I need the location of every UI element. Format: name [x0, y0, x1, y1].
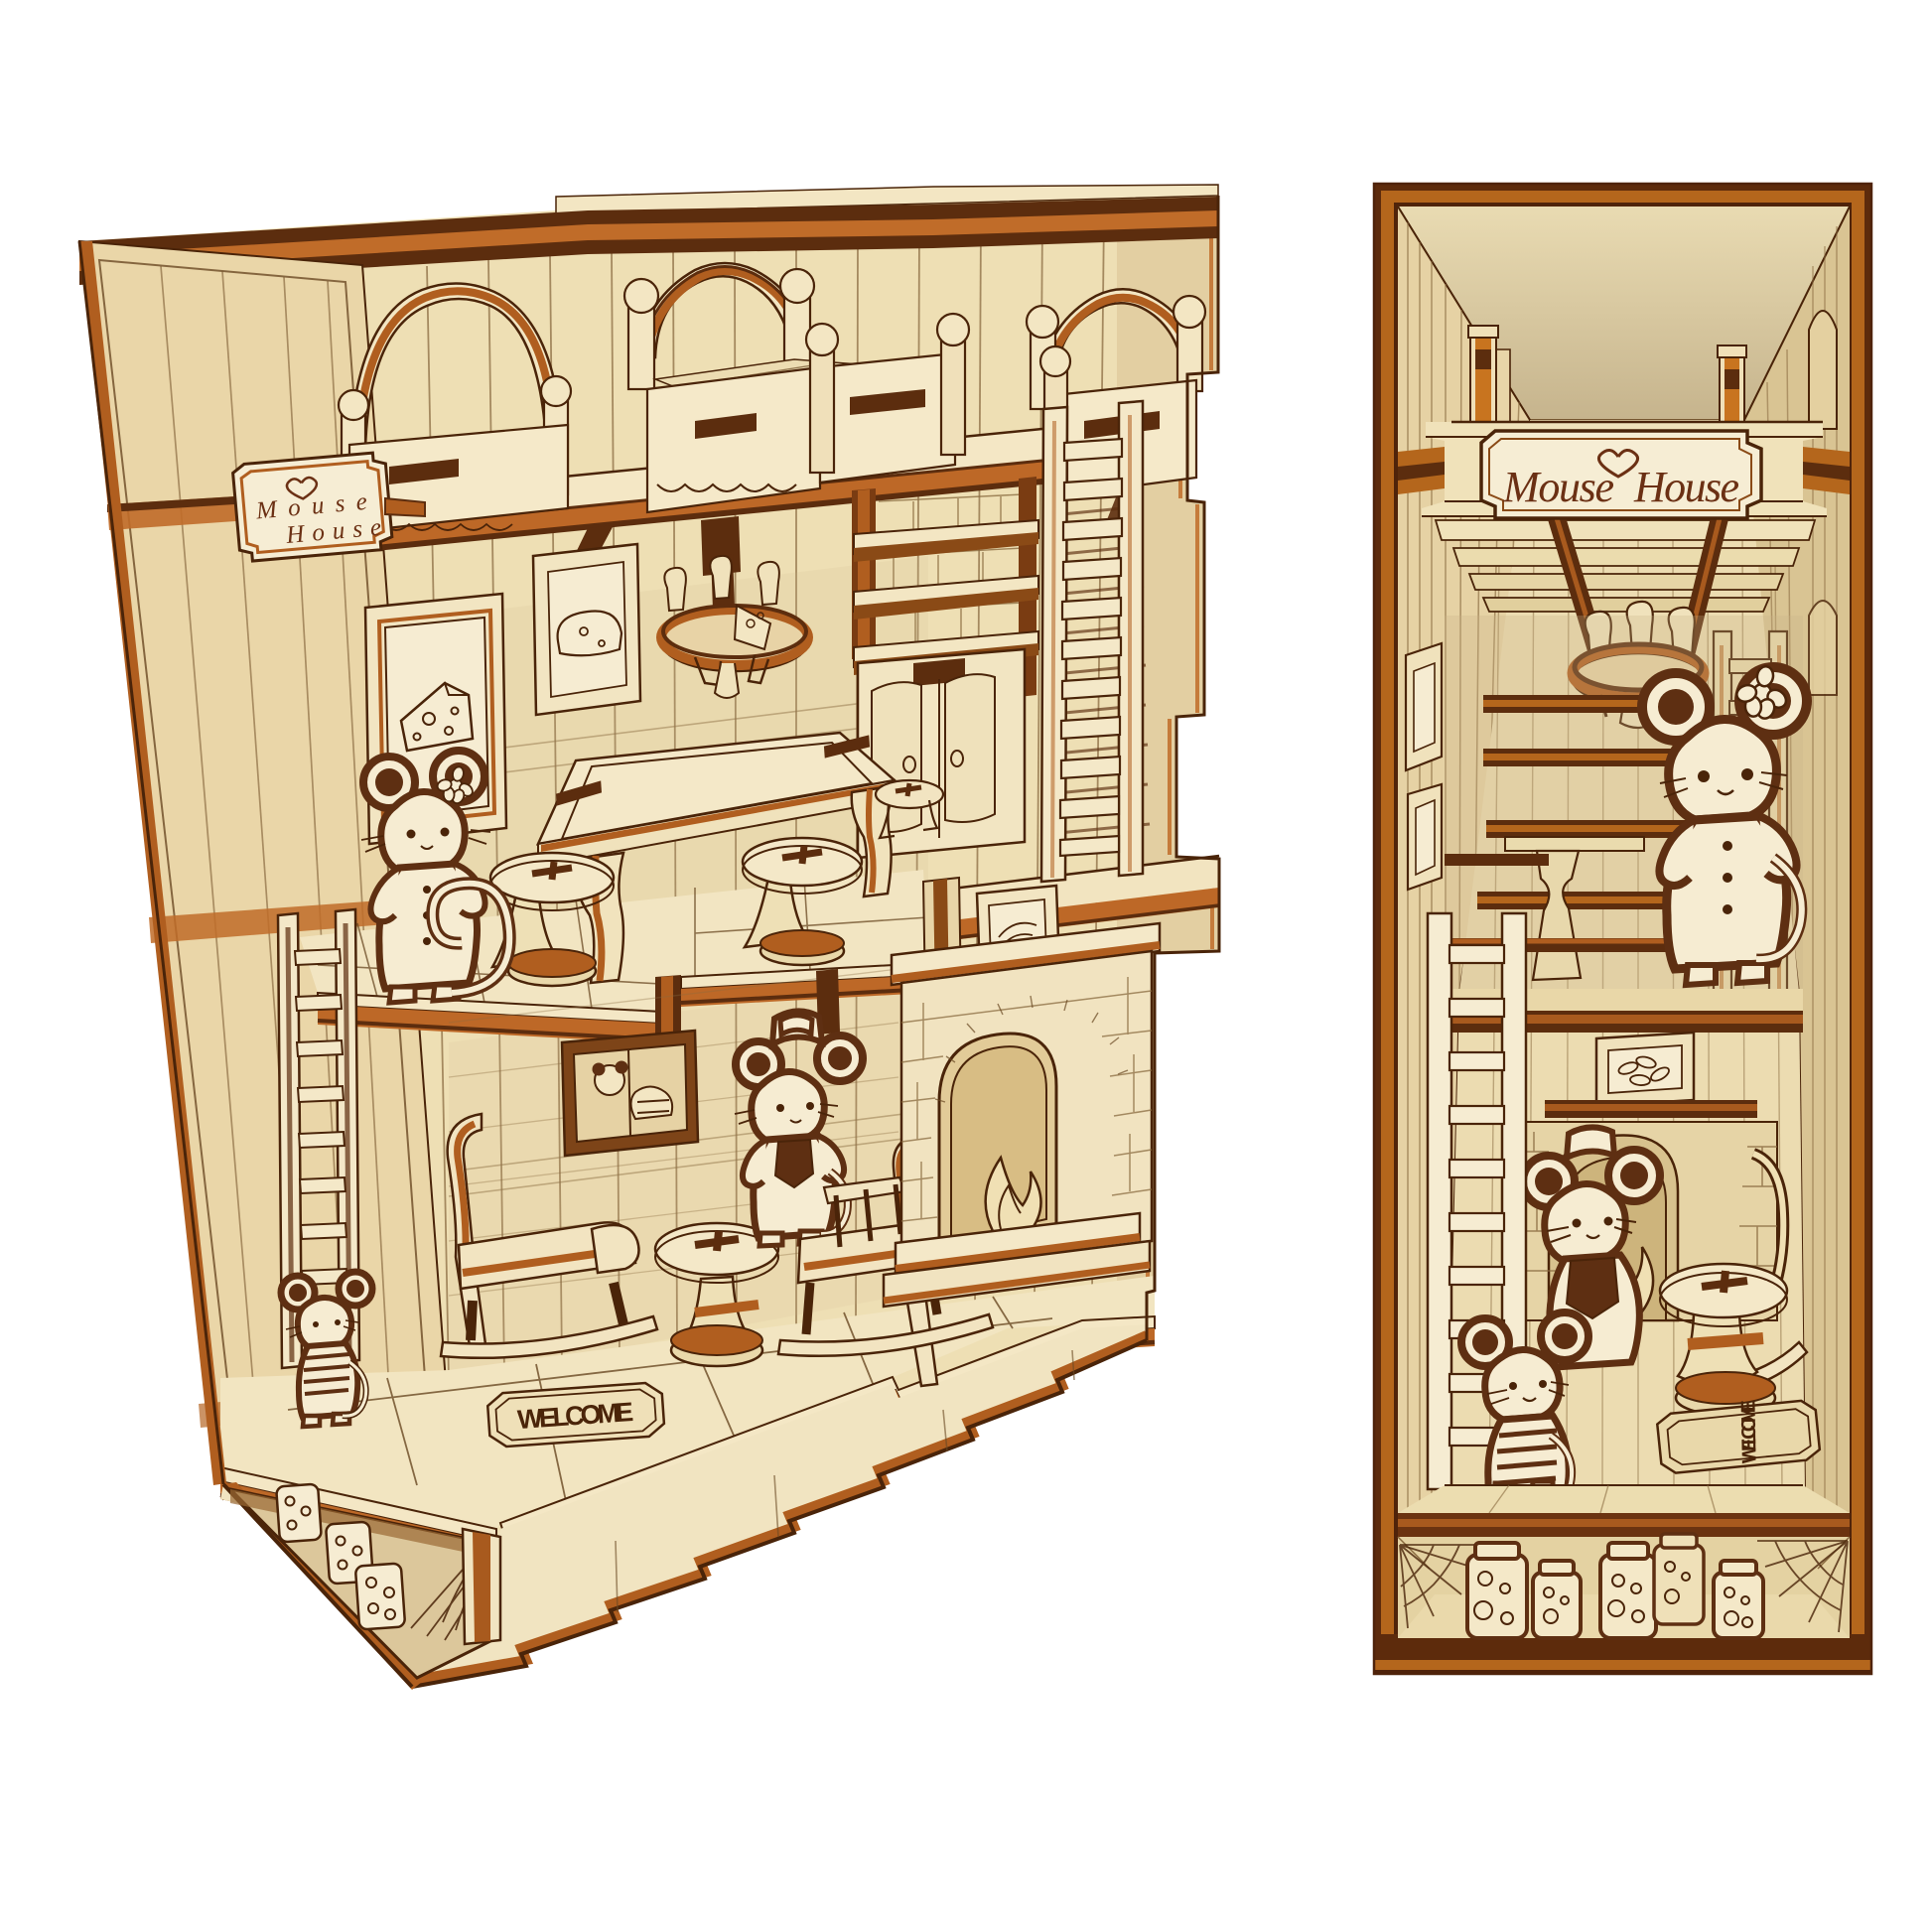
svg-text:WELCOME: WELCOME: [1737, 1400, 1760, 1463]
svg-text:Mouse: Mouse: [1502, 463, 1614, 511]
svg-text:House: House: [1633, 463, 1739, 511]
